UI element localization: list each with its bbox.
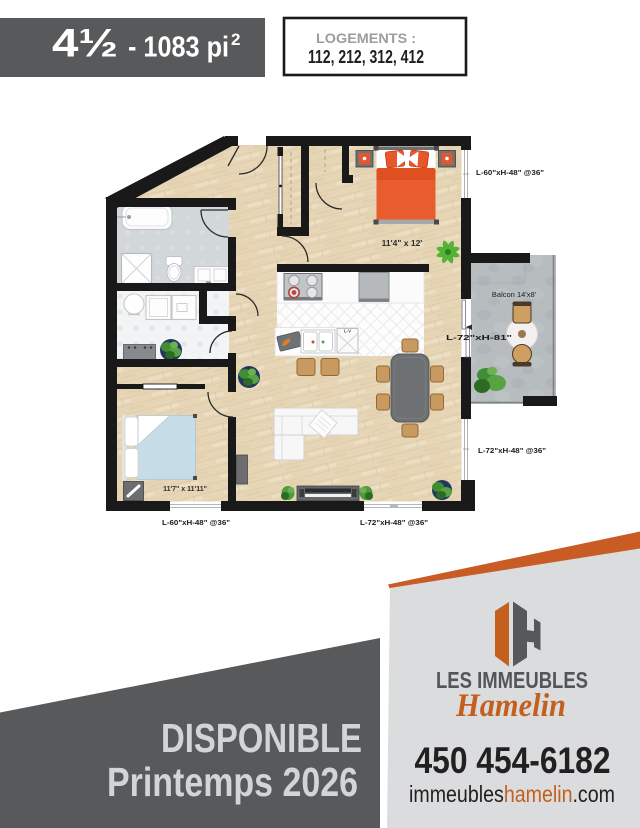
svg-text:450 454-6182: 450 454-6182 <box>415 740 611 781</box>
svg-text:11'7" x 11'11": 11'7" x 11'11" <box>163 486 207 493</box>
svg-text:L-72"xH-48" @36": L-72"xH-48" @36" <box>360 518 428 527</box>
svg-text:L-60"xH-48" @36": L-60"xH-48" @36" <box>476 168 544 177</box>
svg-text:L-V: L-V <box>344 329 351 334</box>
svg-text:L-72"xH-81": L-72"xH-81" <box>446 333 513 342</box>
svg-text:Printemps 2026: Printemps 2026 <box>107 759 358 805</box>
svg-text:2: 2 <box>231 30 240 49</box>
svg-text:Hamelin: Hamelin <box>455 688 566 724</box>
svg-text:L-60"xH-48" @36": L-60"xH-48" @36" <box>162 518 230 527</box>
svg-text:11'4" x 12': 11'4" x 12' <box>382 238 423 248</box>
svg-text:DISPONIBLE: DISPONIBLE <box>161 715 362 761</box>
svg-text:immeubleshamelin.com: immeubleshamelin.com <box>409 781 615 807</box>
svg-text:112, 212, 312, 412: 112, 212, 312, 412 <box>308 46 424 67</box>
svg-text:LOGEMENTS :: LOGEMENTS : <box>316 31 416 46</box>
svg-text:4½: 4½ <box>52 22 118 66</box>
svg-text:- 1083 pi: - 1083 pi <box>128 32 229 64</box>
svg-text:Balcon 14'x8': Balcon 14'x8' <box>492 290 537 299</box>
svg-text:L-72"xH-48" @36": L-72"xH-48" @36" <box>478 446 546 455</box>
